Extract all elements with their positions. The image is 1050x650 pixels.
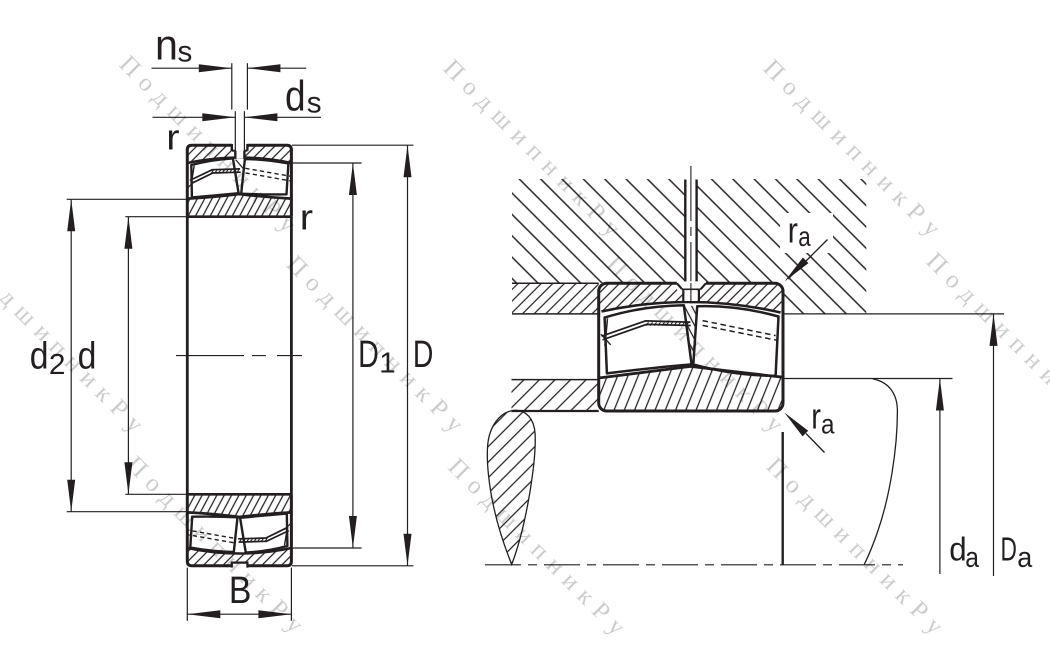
- svg-text:ПодшипникРу: ПодшипникРу: [443, 453, 631, 641]
- svg-text:d: d: [949, 531, 966, 568]
- svg-text:ПодшипникРу: ПодшипникРу: [281, 251, 469, 439]
- svg-text:ПодшипникРу: ПодшипникРу: [761, 453, 949, 641]
- svg-text:n: n: [155, 21, 178, 69]
- svg-text:a: a: [798, 221, 811, 252]
- svg-text:ПодшипникРу: ПодшипникРу: [0, 251, 149, 439]
- svg-text:s: s: [307, 86, 322, 119]
- svg-text:a: a: [965, 542, 979, 574]
- svg-text:r: r: [300, 196, 313, 237]
- svg-text:r: r: [788, 210, 798, 251]
- svg-text:a: a: [1017, 542, 1033, 574]
- svg-text:s: s: [178, 36, 193, 69]
- svg-text:D: D: [1001, 531, 1017, 568]
- svg-text:r: r: [811, 395, 821, 436]
- svg-text:d: d: [285, 72, 306, 120]
- svg-text:a: a: [821, 409, 835, 440]
